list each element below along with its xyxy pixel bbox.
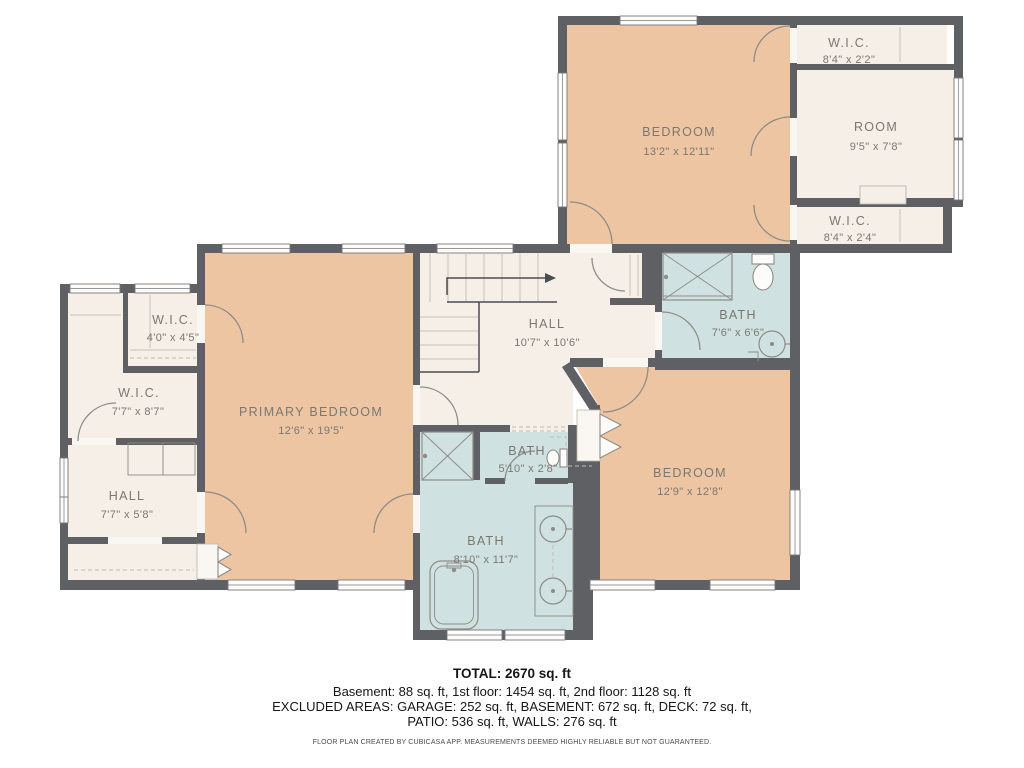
window bbox=[60, 497, 68, 523]
room-label: PRIMARY BEDROOM bbox=[239, 405, 383, 419]
window bbox=[505, 630, 565, 640]
room-label: BATH bbox=[719, 308, 757, 322]
room-niche bbox=[860, 186, 906, 204]
window bbox=[954, 140, 963, 200]
window bbox=[222, 244, 290, 253]
wall-segment bbox=[473, 432, 480, 480]
room-label: W.I.C. bbox=[828, 36, 870, 50]
door-opening bbox=[790, 118, 797, 156]
room-label: BEDROOM bbox=[653, 466, 727, 480]
door-opening bbox=[603, 358, 648, 367]
wall-segment bbox=[123, 366, 198, 373]
room-dims: 8'4" x 2'2" bbox=[823, 54, 876, 66]
room-dims: 9'5" x 7'8" bbox=[850, 141, 903, 153]
window bbox=[620, 16, 697, 25]
room-label: ROOM bbox=[854, 120, 898, 134]
wall-segment bbox=[655, 361, 800, 370]
room-dims: 12'6" x 19'5" bbox=[278, 425, 344, 437]
room-label: W.I.C. bbox=[118, 386, 160, 400]
wall-segment bbox=[797, 64, 954, 70]
excluded-areas-line-2: PATIO: 536 sq. ft, WALLS: 276 sq. ft bbox=[0, 714, 1024, 729]
window bbox=[135, 284, 190, 293]
window bbox=[954, 78, 963, 138]
wall-segment bbox=[197, 244, 205, 590]
door-opening bbox=[790, 28, 797, 63]
room-dims: 8'10" x 11'7" bbox=[454, 554, 519, 566]
room-dims: 13'2" x 12'11" bbox=[643, 146, 714, 158]
window bbox=[558, 73, 567, 140]
window bbox=[590, 580, 655, 590]
disclaimer: FLOOR PLAN CREATED BY CUBICASA APP. MEAS… bbox=[0, 739, 1024, 746]
window bbox=[447, 630, 502, 640]
floor-wic-small bbox=[128, 293, 198, 366]
door-opening bbox=[413, 385, 420, 425]
window bbox=[710, 580, 775, 590]
floor-plan: BEDROOM 13'2" x 12'11" ROOM 9'5" x 7'8" … bbox=[0, 0, 1024, 660]
room-dims: 7'6" x 6'6" bbox=[712, 327, 765, 339]
door-opening bbox=[197, 492, 205, 533]
room-dims: 7'7" x 5'8" bbox=[101, 509, 154, 521]
wall-segment bbox=[535, 478, 568, 484]
door-opening bbox=[108, 537, 162, 544]
room-dims: 7'7" x 8'7" bbox=[112, 406, 165, 418]
door-opening bbox=[570, 244, 612, 253]
wall-segment bbox=[60, 284, 68, 590]
window bbox=[790, 490, 800, 555]
toilet-icon bbox=[752, 254, 774, 290]
door-opening bbox=[413, 495, 420, 533]
floor-areas-line: Basement: 88 sq. ft, 1st floor: 1454 sq.… bbox=[0, 684, 1024, 699]
room-dims: 12'9" x 12'8" bbox=[657, 486, 723, 498]
window bbox=[60, 458, 68, 497]
closet-door-recess bbox=[577, 410, 600, 461]
room-label: BATH bbox=[508, 444, 546, 458]
room-label: W.I.C. bbox=[829, 214, 871, 228]
floor-closet-strip bbox=[68, 544, 198, 580]
door-opening bbox=[790, 205, 797, 240]
room-label: BEDROOM bbox=[642, 125, 716, 139]
wall-segment bbox=[642, 253, 662, 305]
wall-segment bbox=[60, 580, 205, 590]
closet-door-recess bbox=[197, 544, 218, 579]
window bbox=[338, 580, 405, 590]
room-dims: 8'4" x 2'4" bbox=[824, 232, 877, 244]
excluded-areas-line-1: EXCLUDED AREAS: GARAGE: 252 sq. ft, BASE… bbox=[0, 699, 1024, 714]
total-area: TOTAL: 2670 sq. ft bbox=[0, 666, 1024, 681]
door-opening bbox=[655, 312, 662, 350]
wall-segment bbox=[558, 16, 963, 25]
floor-plan-page: BEDROOM 13'2" x 12'11" ROOM 9'5" x 7'8" … bbox=[0, 0, 1024, 768]
room-label: W.I.C. bbox=[152, 313, 194, 327]
window bbox=[437, 244, 513, 253]
window bbox=[228, 580, 295, 590]
room-label: HALL bbox=[109, 489, 145, 503]
wall-segment bbox=[123, 293, 128, 373]
room-dims: 5'10" x 2'8" bbox=[498, 463, 557, 475]
window bbox=[342, 244, 405, 253]
room-label: BATH bbox=[467, 534, 505, 548]
wall-segment bbox=[610, 298, 662, 305]
floor-room bbox=[797, 70, 955, 198]
window bbox=[70, 284, 120, 293]
wall-segment bbox=[413, 425, 510, 432]
room-dims: 4'0" x 4'5" bbox=[147, 332, 200, 344]
wall-segment bbox=[413, 244, 420, 640]
area-summary: TOTAL: 2670 sq. ft Basement: 88 sq. ft, … bbox=[0, 666, 1024, 746]
floor-hall-closet bbox=[610, 253, 642, 298]
wall-segment bbox=[573, 483, 593, 640]
wall-segment bbox=[485, 478, 505, 484]
room-dims: 10'7" x 10'6" bbox=[514, 337, 580, 349]
window bbox=[558, 143, 567, 207]
room-label: HALL bbox=[529, 317, 565, 331]
